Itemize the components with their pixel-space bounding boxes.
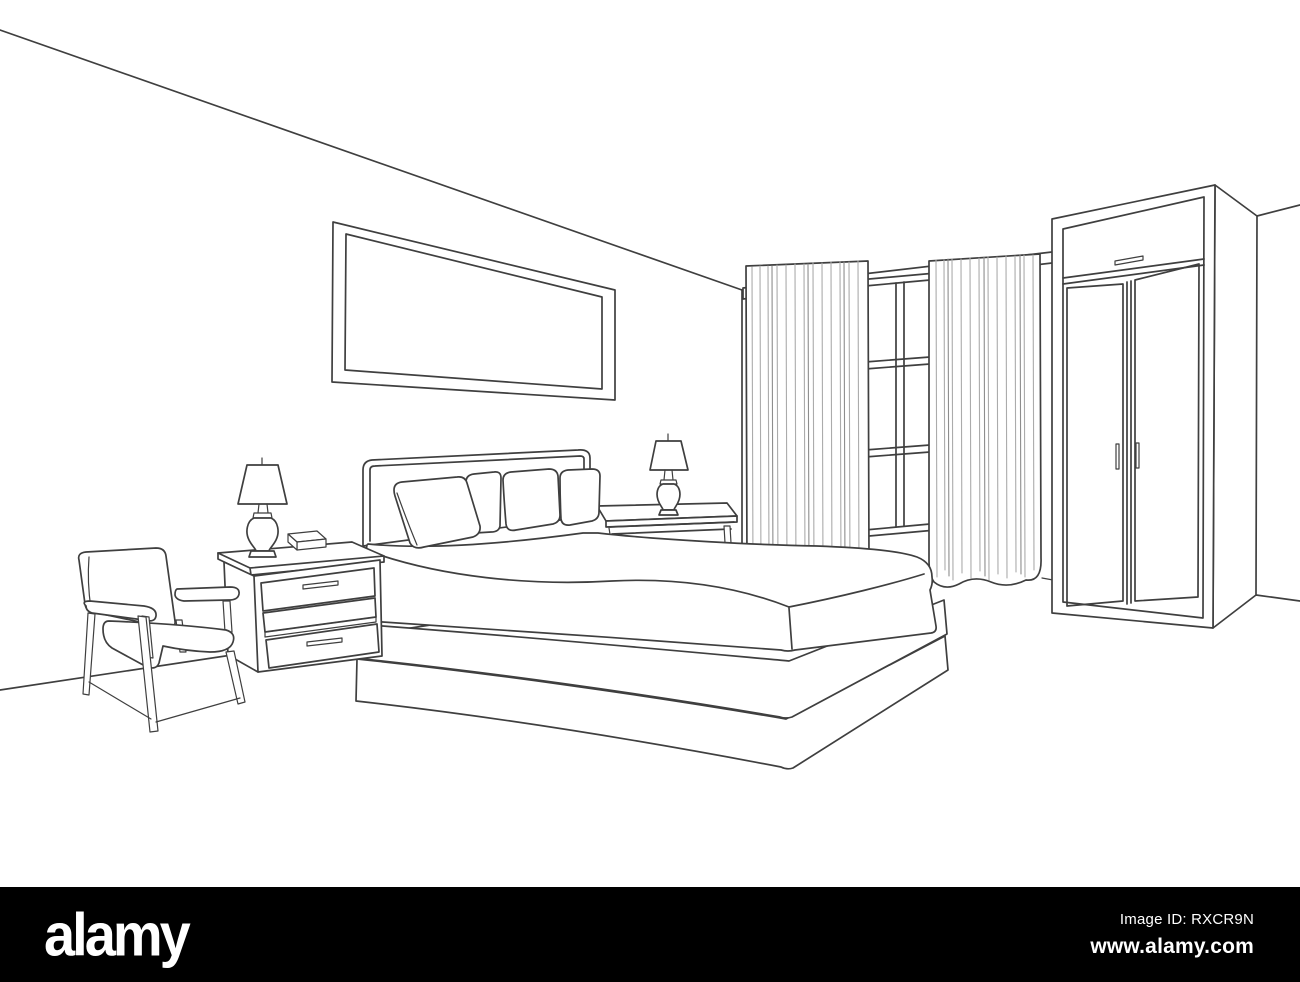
image-id-label: Image ID: RXCR9N (1090, 911, 1254, 928)
armchair-seat (103, 621, 234, 668)
wardrobe-side (1213, 185, 1257, 628)
pillow-right (560, 469, 600, 525)
left-curtain-panel (746, 261, 869, 589)
left-nightstand (218, 542, 384, 672)
lamp-right-body (657, 484, 680, 510)
armchair-arm-post-far (223, 601, 232, 632)
armchair-armrest-far (175, 587, 239, 601)
picture-frame-outer (332, 222, 615, 400)
lamp-left-base (249, 551, 276, 557)
lamp-left-shade (238, 465, 287, 504)
alamy-logo: alamy (44, 904, 188, 964)
wardrobe-handle-right (1136, 443, 1139, 468)
website-label: www.alamy.com (1090, 935, 1254, 959)
lamp-right-neck (664, 470, 673, 480)
lamp-left-body (247, 518, 278, 551)
lamp-right-shade (650, 441, 688, 470)
window (858, 273, 936, 537)
right-curtain (929, 254, 1041, 587)
wardrobe-front (1052, 185, 1215, 628)
tissue-box (288, 531, 326, 550)
bedroom-sketch-svg (0, 0, 1300, 887)
lamp-left-neck (258, 504, 268, 513)
watermark-bar: alamy Image ID: RXCR9N www.alamy.com (0, 887, 1300, 982)
bedroom-sketch (0, 0, 1300, 887)
pillow-middle (503, 469, 560, 530)
table-lamp-left (238, 458, 287, 557)
table-lamp-right (650, 434, 688, 515)
wardrobe-handle-left (1116, 444, 1119, 469)
right-nightstand-leg (724, 526, 731, 543)
wardrobe (1052, 185, 1257, 628)
picture-frame (332, 222, 615, 400)
armchair (79, 548, 245, 732)
lamp-right-base (659, 510, 678, 515)
watermark-meta: Image ID: RXCR9N www.alamy.com (1090, 911, 1254, 959)
left-curtain (746, 261, 869, 589)
window-frame-outer (858, 273, 936, 537)
armchair-stretchers (89, 682, 240, 722)
armchair-leg-front-left (83, 613, 95, 695)
ceiling-edge-right (1257, 205, 1300, 216)
floor-edge-right (1256, 595, 1300, 601)
